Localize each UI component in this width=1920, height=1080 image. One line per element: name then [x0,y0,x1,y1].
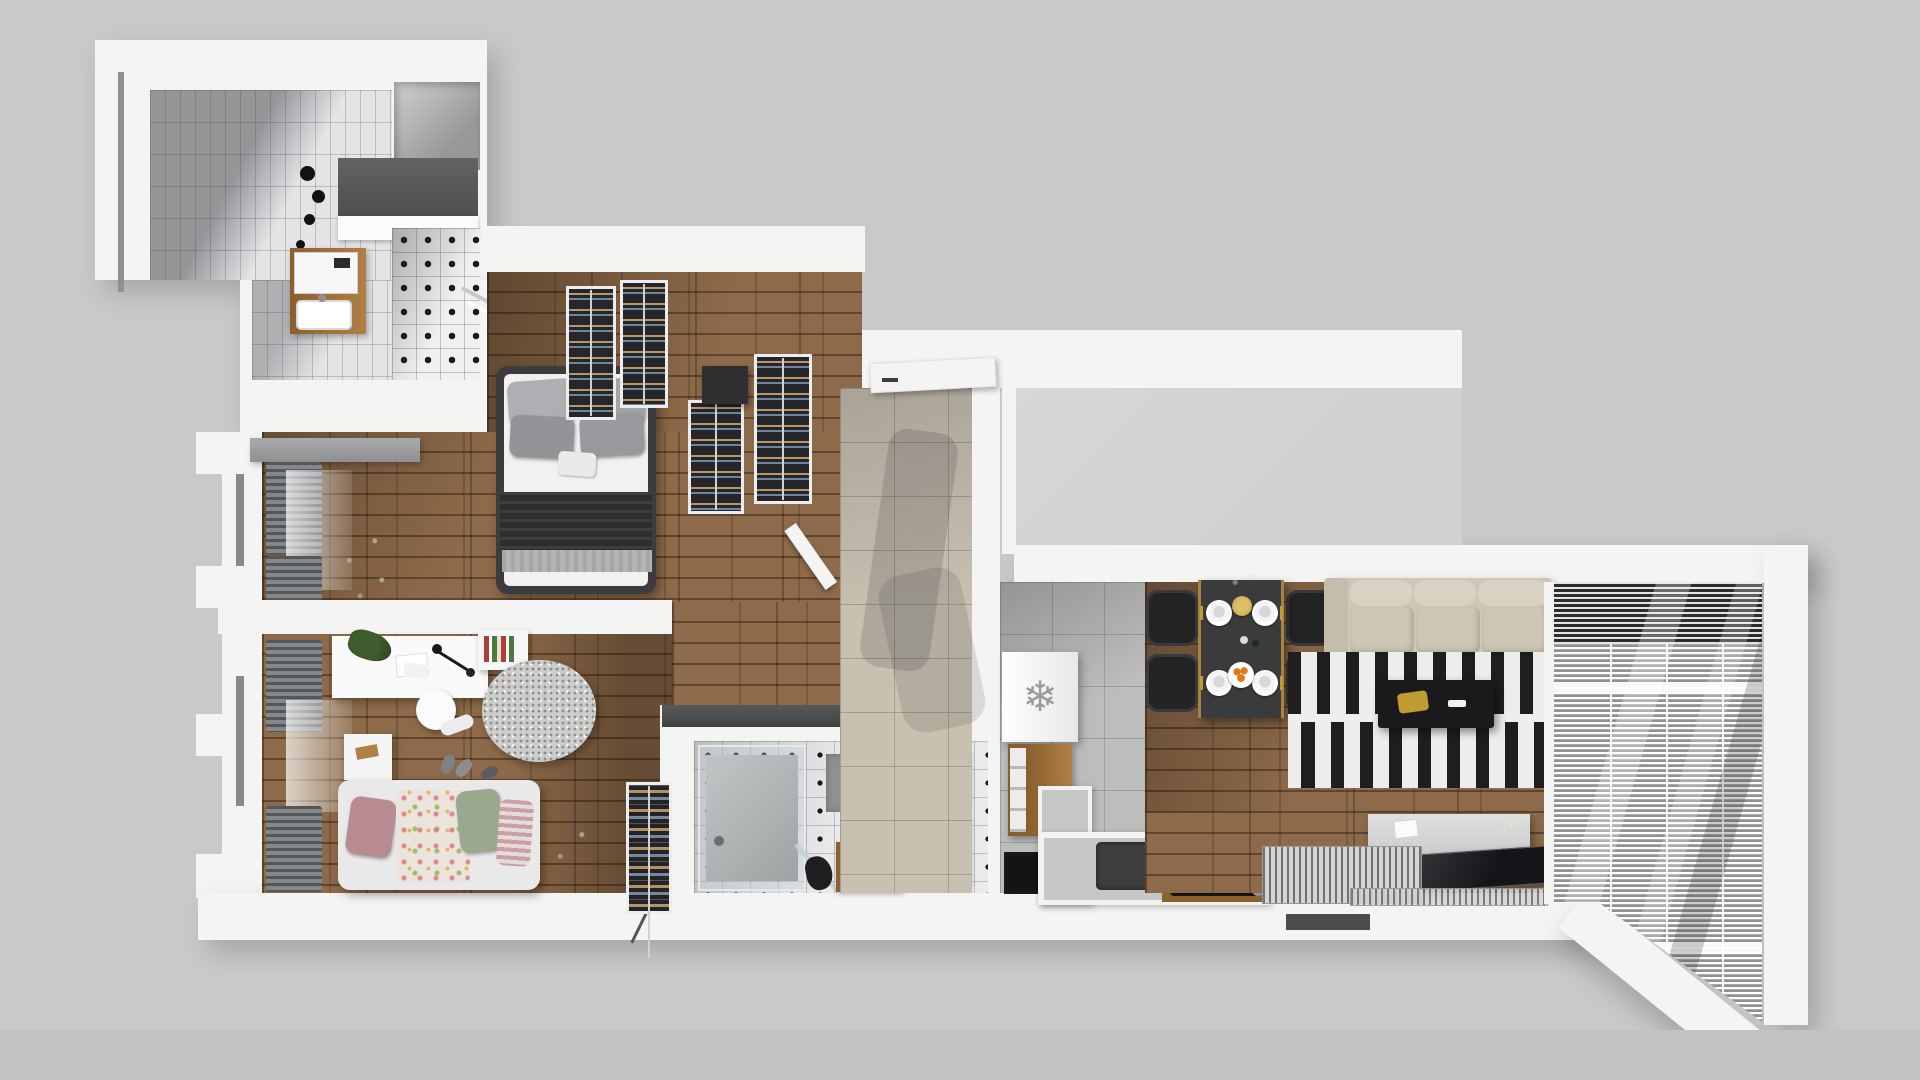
service-niche [394,82,480,170]
table-candle [1240,636,1248,644]
gold-bowl [1232,596,1252,616]
bottle-1 [300,166,315,181]
sofa-back-cushion-2 [1414,580,1476,606]
coffee-table-tray [1397,690,1429,714]
cutlery-3 [1200,676,1203,690]
shoe-rack-pole [648,786,650,958]
shower-tray [706,755,798,881]
shaft-west-band [1002,356,1016,554]
right-outer-wall [1764,545,1808,1025]
kids-plant [544,816,598,878]
bedroom-top-wall [487,226,865,272]
wardrobe-rail-1 [590,290,592,416]
wardrobe-rail-4 [782,358,784,500]
dining-chair-2 [1146,654,1198,712]
laundry-faucet [318,294,326,302]
coffee-table [1378,680,1494,728]
kids-pillow-pink [344,795,398,859]
bedroom-window-glass [236,474,244,566]
fridge: ❄ [1002,652,1078,742]
background-bottom-strip [0,1030,1920,1080]
bedroom-kids-divider-wall [218,600,672,634]
laundry-window-glass [118,72,124,292]
cutlery-4 [1280,676,1283,690]
sofa-seat-cushion-1 [1350,606,1414,654]
table-centerpiece-plant [1222,572,1266,588]
closet-corridor-floor [672,602,862,706]
wall-nub-4 [196,854,226,898]
laundry-sink [296,300,352,330]
bedroom-bench [702,366,748,404]
fruit-plate [1228,662,1254,688]
console-magazine [1393,819,1419,839]
bathroom-halfwall-counter [662,705,842,727]
sofa-back-cushion-3 [1478,580,1548,606]
washer-display [334,258,350,268]
desk-lamp-head [466,668,475,677]
radiator-low [1350,888,1548,906]
bottle-2 [312,190,325,203]
sofa-seat-cushion-3 [1482,606,1548,654]
window-slot-bottom [1286,914,1370,930]
kids-pillow-striped [496,799,535,867]
balcony-transom-1 [1554,684,1762,694]
balcony-blind-dark-band [1554,582,1762,644]
dinner-plate-2 [1252,600,1278,626]
dinner-plate-1 [1206,600,1232,626]
cutlery-2 [1280,606,1283,620]
coffee-table-remote [1448,700,1466,707]
floor-plan-render: ❄ [0,0,1920,1080]
dining-chair-1 [1146,590,1198,646]
sofa-seat-cushion-2 [1416,606,1480,654]
bedroom-wall-radiator [250,438,420,462]
freezer-snowflake-icon: ❄ [1022,676,1057,718]
hallway-floor [840,388,972,893]
wall-nub-1 [196,432,226,474]
cutlery-1 [1200,606,1203,620]
bedroom-curtain-lower [266,556,322,602]
kids-curtain-lower [266,806,322,892]
kids-window-glass [236,676,244,806]
wardrobe-rail-3 [715,404,717,510]
laundry-counter-top [338,158,478,216]
bed-throw-gray [502,550,652,572]
bed-small-pillow [557,451,597,478]
sofa-arm [1324,578,1348,658]
wardrobe-rail-2 [643,284,645,404]
cabinet-drawers [1010,748,1026,832]
bottle-3 [304,214,315,225]
kids-round-rug [482,660,596,762]
table-bottle [1252,640,1259,647]
shower-drain [714,836,724,846]
balcony-mullion-3 [1722,644,1724,1022]
entry-door-handle [882,378,898,382]
console-plant [1500,820,1516,834]
stair-shaft-block [1016,388,1462,545]
shelf-books [484,636,514,662]
wall-nub-3 [196,714,226,756]
dinner-plate-4 [1252,670,1278,696]
bed-blanket-dark [500,492,652,550]
sofa-back-cushion-1 [1350,580,1412,606]
striped-rug-bottom [1288,722,1550,788]
